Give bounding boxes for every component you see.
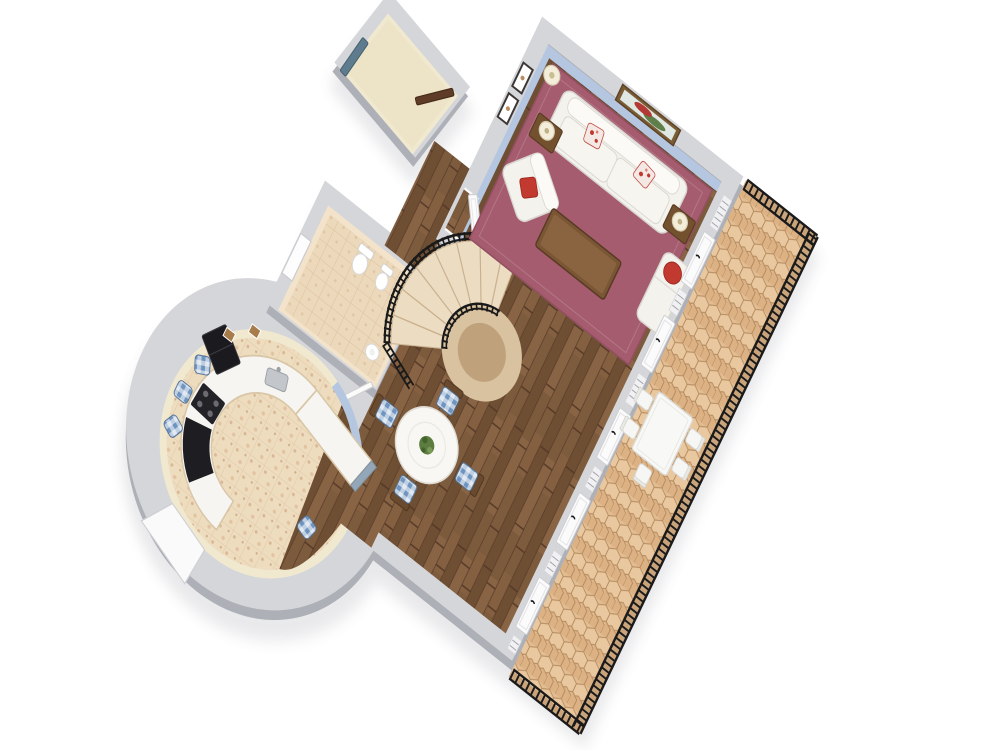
red-pillow	[519, 177, 538, 198]
gingham-stool	[194, 354, 210, 375]
floor-plan-render	[0, 0, 1000, 750]
floor-plan-canvas	[0, 0, 1000, 750]
